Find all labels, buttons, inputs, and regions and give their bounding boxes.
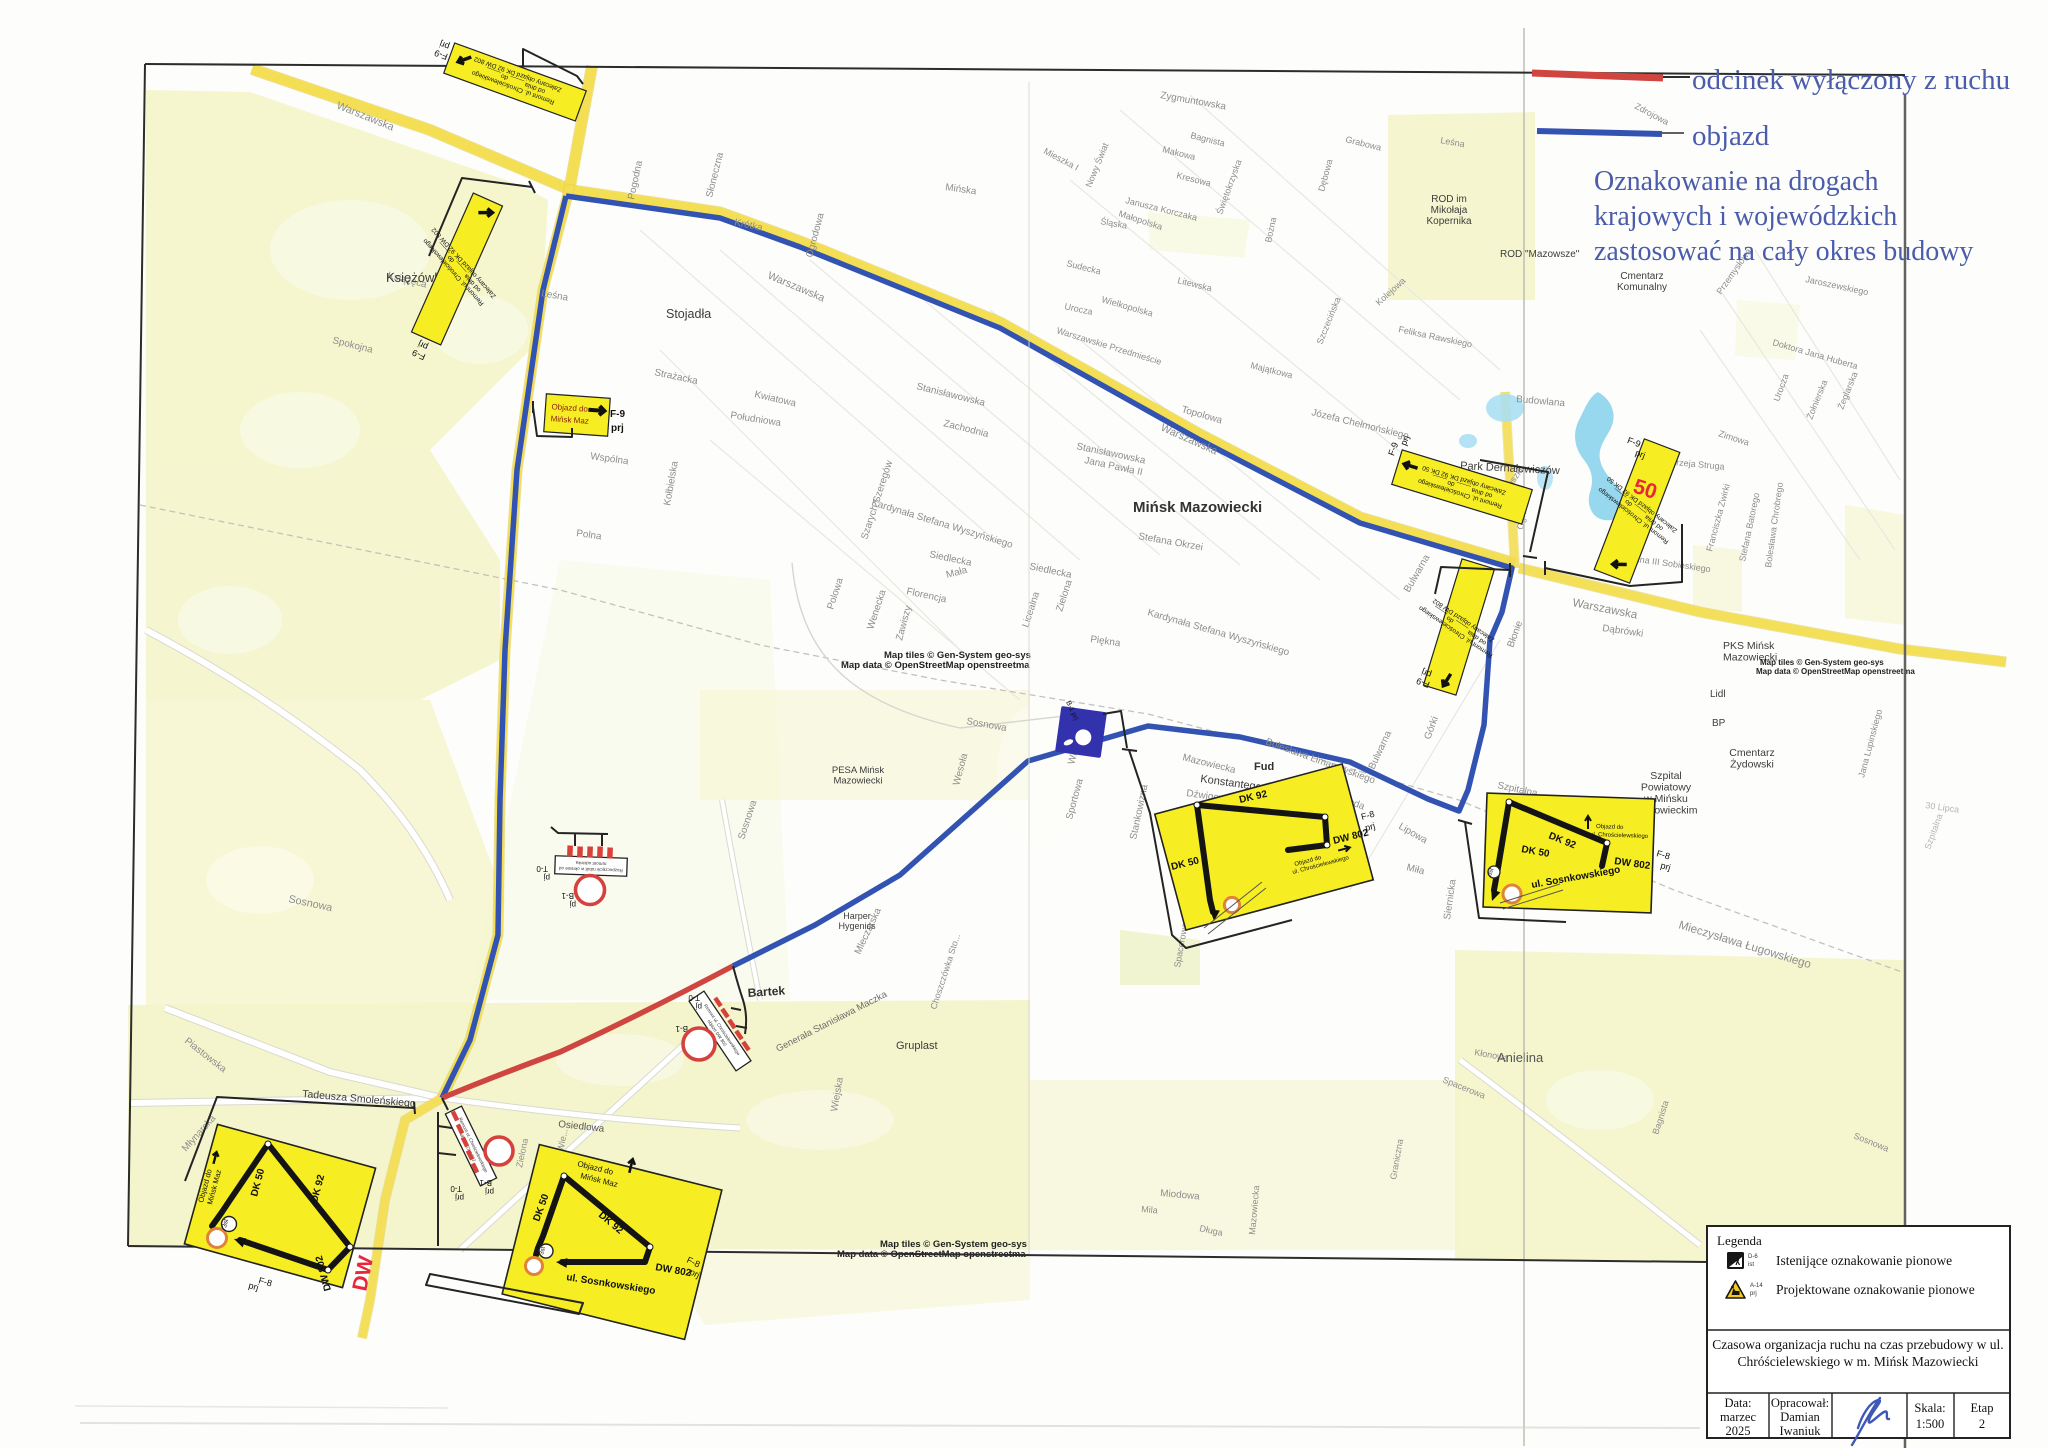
svg-text:prj: prj (611, 423, 624, 434)
svg-text:Skala:: Skala: (1914, 1401, 1945, 1415)
svg-text:pj: pj (544, 873, 550, 882)
svg-text:2: 2 (1979, 1417, 1985, 1431)
svg-text:Opracował:: Opracował: (1771, 1396, 1829, 1410)
svg-text:Harper: Harper (843, 911, 871, 921)
svg-text:1:500: 1:500 (1916, 1417, 1944, 1431)
svg-text:Mińsk Mazowiecki: Mińsk Mazowiecki (1133, 499, 1262, 516)
svg-text:odcinek wyłączony z ruchu: odcinek wyłączony z ruchu (1692, 64, 2010, 96)
svg-text:Komunalny: Komunalny (1617, 282, 1667, 293)
svg-text:PKS Mińsk: PKS Mińsk (1723, 640, 1775, 652)
svg-text:Żydowski: Żydowski (1730, 758, 1774, 771)
svg-text:F-9: F-9 (610, 409, 625, 420)
svg-text:T-0: T-0 (450, 1184, 462, 1193)
svg-text:D-6: D-6 (1748, 1254, 1758, 1260)
svg-text:Iwaniuk: Iwaniuk (1780, 1424, 1822, 1438)
svg-text:ist: ist (1748, 1262, 1754, 1268)
svg-text:Damian: Damian (1780, 1410, 1820, 1424)
svg-text:Gruplast: Gruplast (896, 1040, 938, 1052)
svg-text:PESA Mińsk: PESA Mińsk (832, 765, 885, 776)
svg-text:Cmentarz: Cmentarz (1729, 747, 1775, 759)
svg-text:prj: prj (1750, 1291, 1757, 1297)
svg-text:prj: prj (485, 1187, 494, 1196)
svg-text:Anielina: Anielina (1497, 1050, 1544, 1065)
svg-text:T-0: T-0 (688, 993, 700, 1002)
svg-text:zastosować na cały okres budow: zastosować na cały okres budowy (1594, 236, 1973, 267)
svg-text:B-1: B-1 (479, 1178, 492, 1187)
svg-text:Hygenics: Hygenics (838, 921, 876, 931)
svg-text:Fud: Fud (1254, 761, 1274, 773)
svg-text:Objazd do: Objazd do (1596, 824, 1624, 831)
svg-text:ROD im: ROD im (1431, 194, 1467, 205)
svg-text:marzec: marzec (1720, 1410, 1757, 1424)
svg-text:pj: pj (696, 1002, 702, 1011)
svg-text:B-1: B-1 (675, 1024, 688, 1033)
svg-text:2025: 2025 (1726, 1424, 1751, 1438)
svg-text:krajowych i wojewódzkich: krajowych i wojewódzkich (1594, 201, 1897, 232)
svg-text:Map data © OpenStreetMap opens: Map data © OpenStreetMap openstreetma (1756, 667, 1915, 676)
svg-text:Kopernika: Kopernika (1426, 216, 1471, 227)
svg-text:T-0: T-0 (536, 864, 548, 873)
svg-text:Powiatowy: Powiatowy (1641, 782, 1692, 794)
svg-text:Bartek: Bartek (747, 983, 786, 1000)
svg-text:objazd: objazd (1692, 120, 1770, 152)
svg-text:B-1: B-1 (561, 891, 574, 900)
svg-text:ROD "Mazowsze": ROD "Mazowsze" (1500, 249, 1580, 260)
svg-text:Mila: Mila (1141, 1204, 1158, 1215)
svg-text:Etap: Etap (1971, 1401, 1994, 1415)
svg-text:Istenijące oznakowanie pionowe: Istenijące oznakowanie pionowe (1776, 1253, 1952, 1268)
svg-text:Chróścielewskiego w m. Mińsk M: Chróścielewskiego w m. Mińsk Mazowiecki (1737, 1354, 1978, 1369)
svg-text:Czasowa organizacja ruchu na c: Czasowa organizacja ruchu na czas przebu… (1712, 1337, 2003, 1352)
svg-text:Data:: Data: (1724, 1396, 1751, 1410)
svg-text:prj: prj (455, 1193, 464, 1202)
svg-text:Cmentarz: Cmentarz (1620, 271, 1663, 282)
svg-text:Mazowiecki: Mazowiecki (833, 776, 882, 787)
svg-text:Mikołaja: Mikołaja (1431, 205, 1468, 216)
svg-text:Szpital: Szpital (1650, 770, 1682, 782)
svg-text:pj: pj (570, 900, 576, 909)
svg-text:BP: BP (1712, 718, 1726, 729)
svg-text:Map data © OpenStreetMap opens: Map data © OpenStreetMap openstreetma (841, 660, 1030, 671)
svg-text:Oznakowanie na drogach: Oznakowanie na drogach (1594, 166, 1879, 197)
svg-text:Stojadła: Stojadła (666, 307, 711, 321)
svg-text:Projektowane oznakowanie piono: Projektowane oznakowanie pionowe (1776, 1282, 1975, 1297)
svg-text:Legenda: Legenda (1717, 1233, 1762, 1248)
svg-text:A-14: A-14 (1750, 1283, 1763, 1289)
svg-text:Lidl: Lidl (1710, 689, 1726, 700)
svg-text:Map tiles © Gen-System geo-sys: Map tiles © Gen-System geo-sys (1760, 658, 1884, 667)
